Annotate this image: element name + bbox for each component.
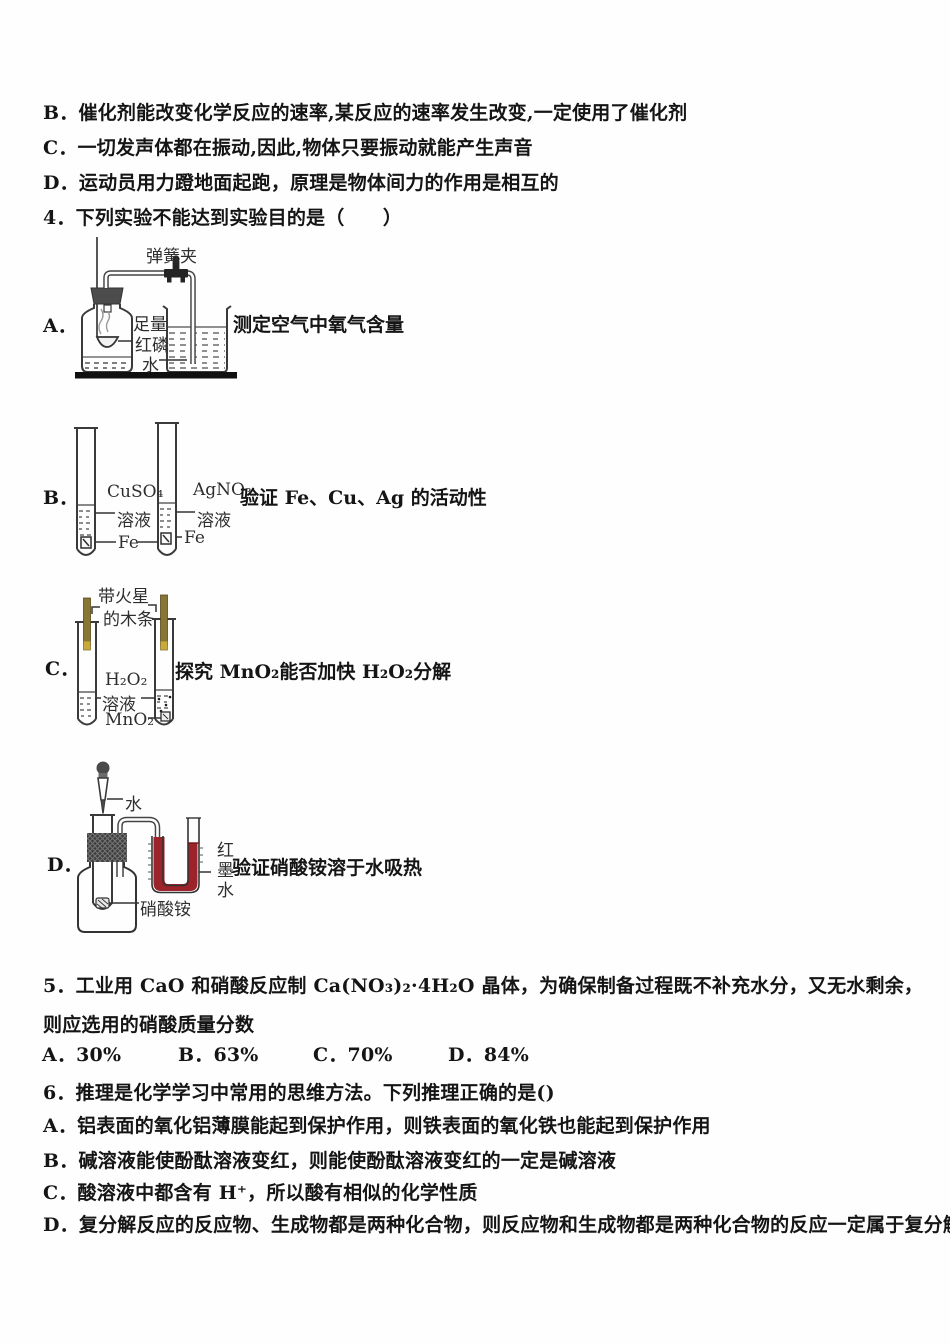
q4-diagram-a: A． 弹簧夹 足量 红磷 水 测定空气中氧气含量 [40, 237, 460, 387]
q5-option-b: B．63% [178, 1040, 259, 1067]
q5-option-d: D．84% [448, 1040, 529, 1067]
q6-option-c: C．酸溶液中都含有 H⁺，所以酸有相似的化学性质 [43, 1178, 478, 1205]
dropper-icon [97, 762, 110, 814]
iron-piece-left [81, 537, 91, 548]
cuso4-solution [78, 505, 94, 535]
q3-option-b: B．催化剂能改变化学反应的速率,某反应的速率发生改变,一定使用了催化剂 [43, 98, 687, 125]
water-label: 水 [142, 351, 159, 376]
exam-page: B．催化剂能改变化学反应的速率,某反应的速率发生改变,一定使用了催化剂 C．一切… [0, 0, 950, 1344]
q5-option-a: A．30% [42, 1040, 121, 1067]
option-letter-b: B． [43, 483, 78, 510]
wooden-splint-right [161, 595, 168, 650]
splint-label-2: 的木条 [103, 605, 154, 630]
option-letter-c: C． [45, 654, 79, 681]
q5-stem: 5．工业用 CaO 和硝酸反应制 Ca(NO₃)₂·4H₂O 晶体，为确保制备过… [43, 967, 936, 1045]
fe-label-right: Fe [184, 528, 205, 548]
diagram-c-caption: 探究 MnO₂能否加快 H₂O₂分解 [175, 657, 451, 684]
stopper [91, 288, 123, 304]
q4-diagram-d: D． 水 硝酸铵 红墨水 验证硝酸铵溶于水吸热 [40, 756, 480, 941]
q6-option-a: A．铝表面的氧化铝薄膜能起到保护作用，则铁表面的氧化铁也能起到保护作用 [43, 1111, 711, 1138]
mno2-label: MnO₂ [105, 710, 154, 730]
q5-option-c: C．70% [313, 1040, 393, 1067]
ammonium-nitrate-solid [96, 898, 109, 908]
fe-label-left: Fe [118, 533, 139, 553]
q6-stem: 6．推理是化学学习中常用的思维方法。下列推理正确的是() [43, 1078, 555, 1105]
h2o2-label: H₂O₂ [105, 670, 147, 690]
diagram-d-caption: 验证硝酸铵溶于水吸热 [232, 853, 422, 880]
option-letter-a: A． [43, 311, 77, 338]
cuso4-label: CuSO₄ [107, 482, 163, 502]
diagram-b-caption: 验证 Fe、Cu、Ag 的活动性 [240, 483, 487, 510]
wide-mouth-bottle [78, 862, 136, 932]
inner-glass-tube [117, 862, 123, 877]
q4-diagram-c: C． 带火星 的木条 H₂O₂ 溶液 MnO₂ 探究 MnO₂能否加快 H₂O₂… [40, 578, 470, 733]
beaker-water [168, 327, 226, 368]
mno2-lump [161, 712, 170, 721]
rubber-stopper [87, 833, 127, 862]
apparatus-d-illustration [40, 756, 480, 941]
water-drop-label: 水 [125, 790, 142, 815]
q3-option-d: D．运动员用力蹬地面起跑，原理是物体间力的作用是相互的 [43, 168, 559, 195]
h2o2-liquid-left [79, 692, 95, 716]
option-letter-d: D． [47, 850, 82, 877]
iron-piece-right [161, 533, 171, 544]
agno3-solution [159, 503, 175, 527]
q4-diagram-b: B． CuSO₄ 溶液 Fe AgNO₃ 溶液 Fe 验证 Fe、Cu、Ag 的… [40, 418, 470, 563]
mno2-particles [158, 696, 172, 713]
red-ink-liquid [154, 837, 198, 891]
solution-label-left: 溶液 [117, 506, 151, 531]
q6-option-b: B．碱溶液能使酚酞溶液变红，则能使酚酞溶液变红的一定是碱溶液 [43, 1146, 616, 1173]
clamp-label: 弹簧夹 [146, 242, 197, 267]
q4-stem: 4．下列实验不能达到实验目的是（ ） [43, 203, 402, 230]
q6-option-d: D．复分解反应的反应物、生成物都是两种化合物，则反应物和生成物都是两种化合物的反… [43, 1210, 950, 1237]
q3-option-c: C．一切发声体都在振动,因此,物体只要振动就能产生声音 [43, 133, 533, 160]
diagram-a-caption: 测定空气中氧气含量 [233, 310, 404, 337]
splint-label-1: 带火星 [98, 582, 149, 607]
wooden-splint-left [84, 598, 91, 650]
combustion-spoon [97, 337, 118, 347]
salt-label: 硝酸铵 [140, 895, 191, 920]
smoke [99, 309, 110, 334]
bottle-water [83, 357, 131, 368]
